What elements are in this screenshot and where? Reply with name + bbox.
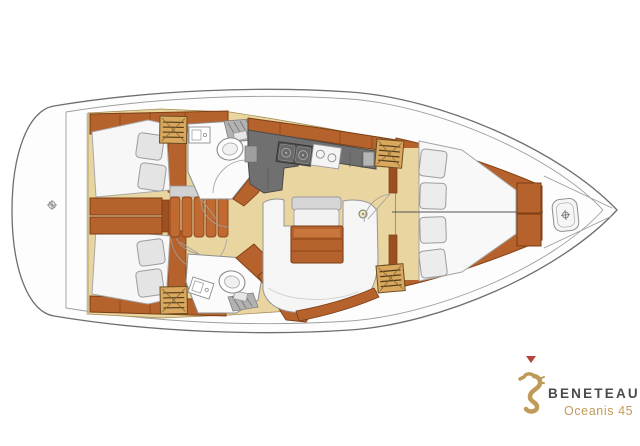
saloon-bench-back [292,197,341,210]
red-marker-icon [526,356,536,363]
forward-cabin-locker-starboard [376,264,405,293]
v-berth-pillow-3 [420,217,447,244]
engine-box-lower [90,217,162,234]
aft-starboard-locker [160,287,187,314]
bow-bulkhead-lower [517,214,541,246]
v-berth-pillow-4 [419,249,448,279]
engine-box-side [162,200,169,232]
aft-port-pillow-2 [137,162,166,191]
seahorse-icon [512,370,548,414]
galley-stove [311,144,342,169]
anchor-locker-hatch [551,198,579,232]
companionway-steps [170,197,228,237]
engine-box-upper [90,198,162,215]
forward-cabin-locker-port [375,139,404,168]
port-head-sink [189,127,210,143]
galley-sink [276,142,313,167]
galley-end-cabinet [245,146,257,162]
forward-bulkhead-lower [389,235,397,265]
galley-fridge [363,152,374,166]
brand-model: Oceanis 45 [564,404,633,418]
v-berth-pillow-2 [420,183,447,210]
bow-bulkhead-upper [517,183,541,213]
aft-starboard-pillow-1 [136,238,165,266]
saloon-bench-seat [294,209,339,227]
v-berth-pillow-1 [418,149,447,179]
brand-block: BENETEAU Oceanis 45 [504,352,640,432]
saloon-table [291,226,343,263]
boat-floor-plan-page: BENETEAU Oceanis 45 [0,0,640,446]
brand-name: BENETEAU [548,386,640,401]
aft-port-locker [160,116,187,143]
